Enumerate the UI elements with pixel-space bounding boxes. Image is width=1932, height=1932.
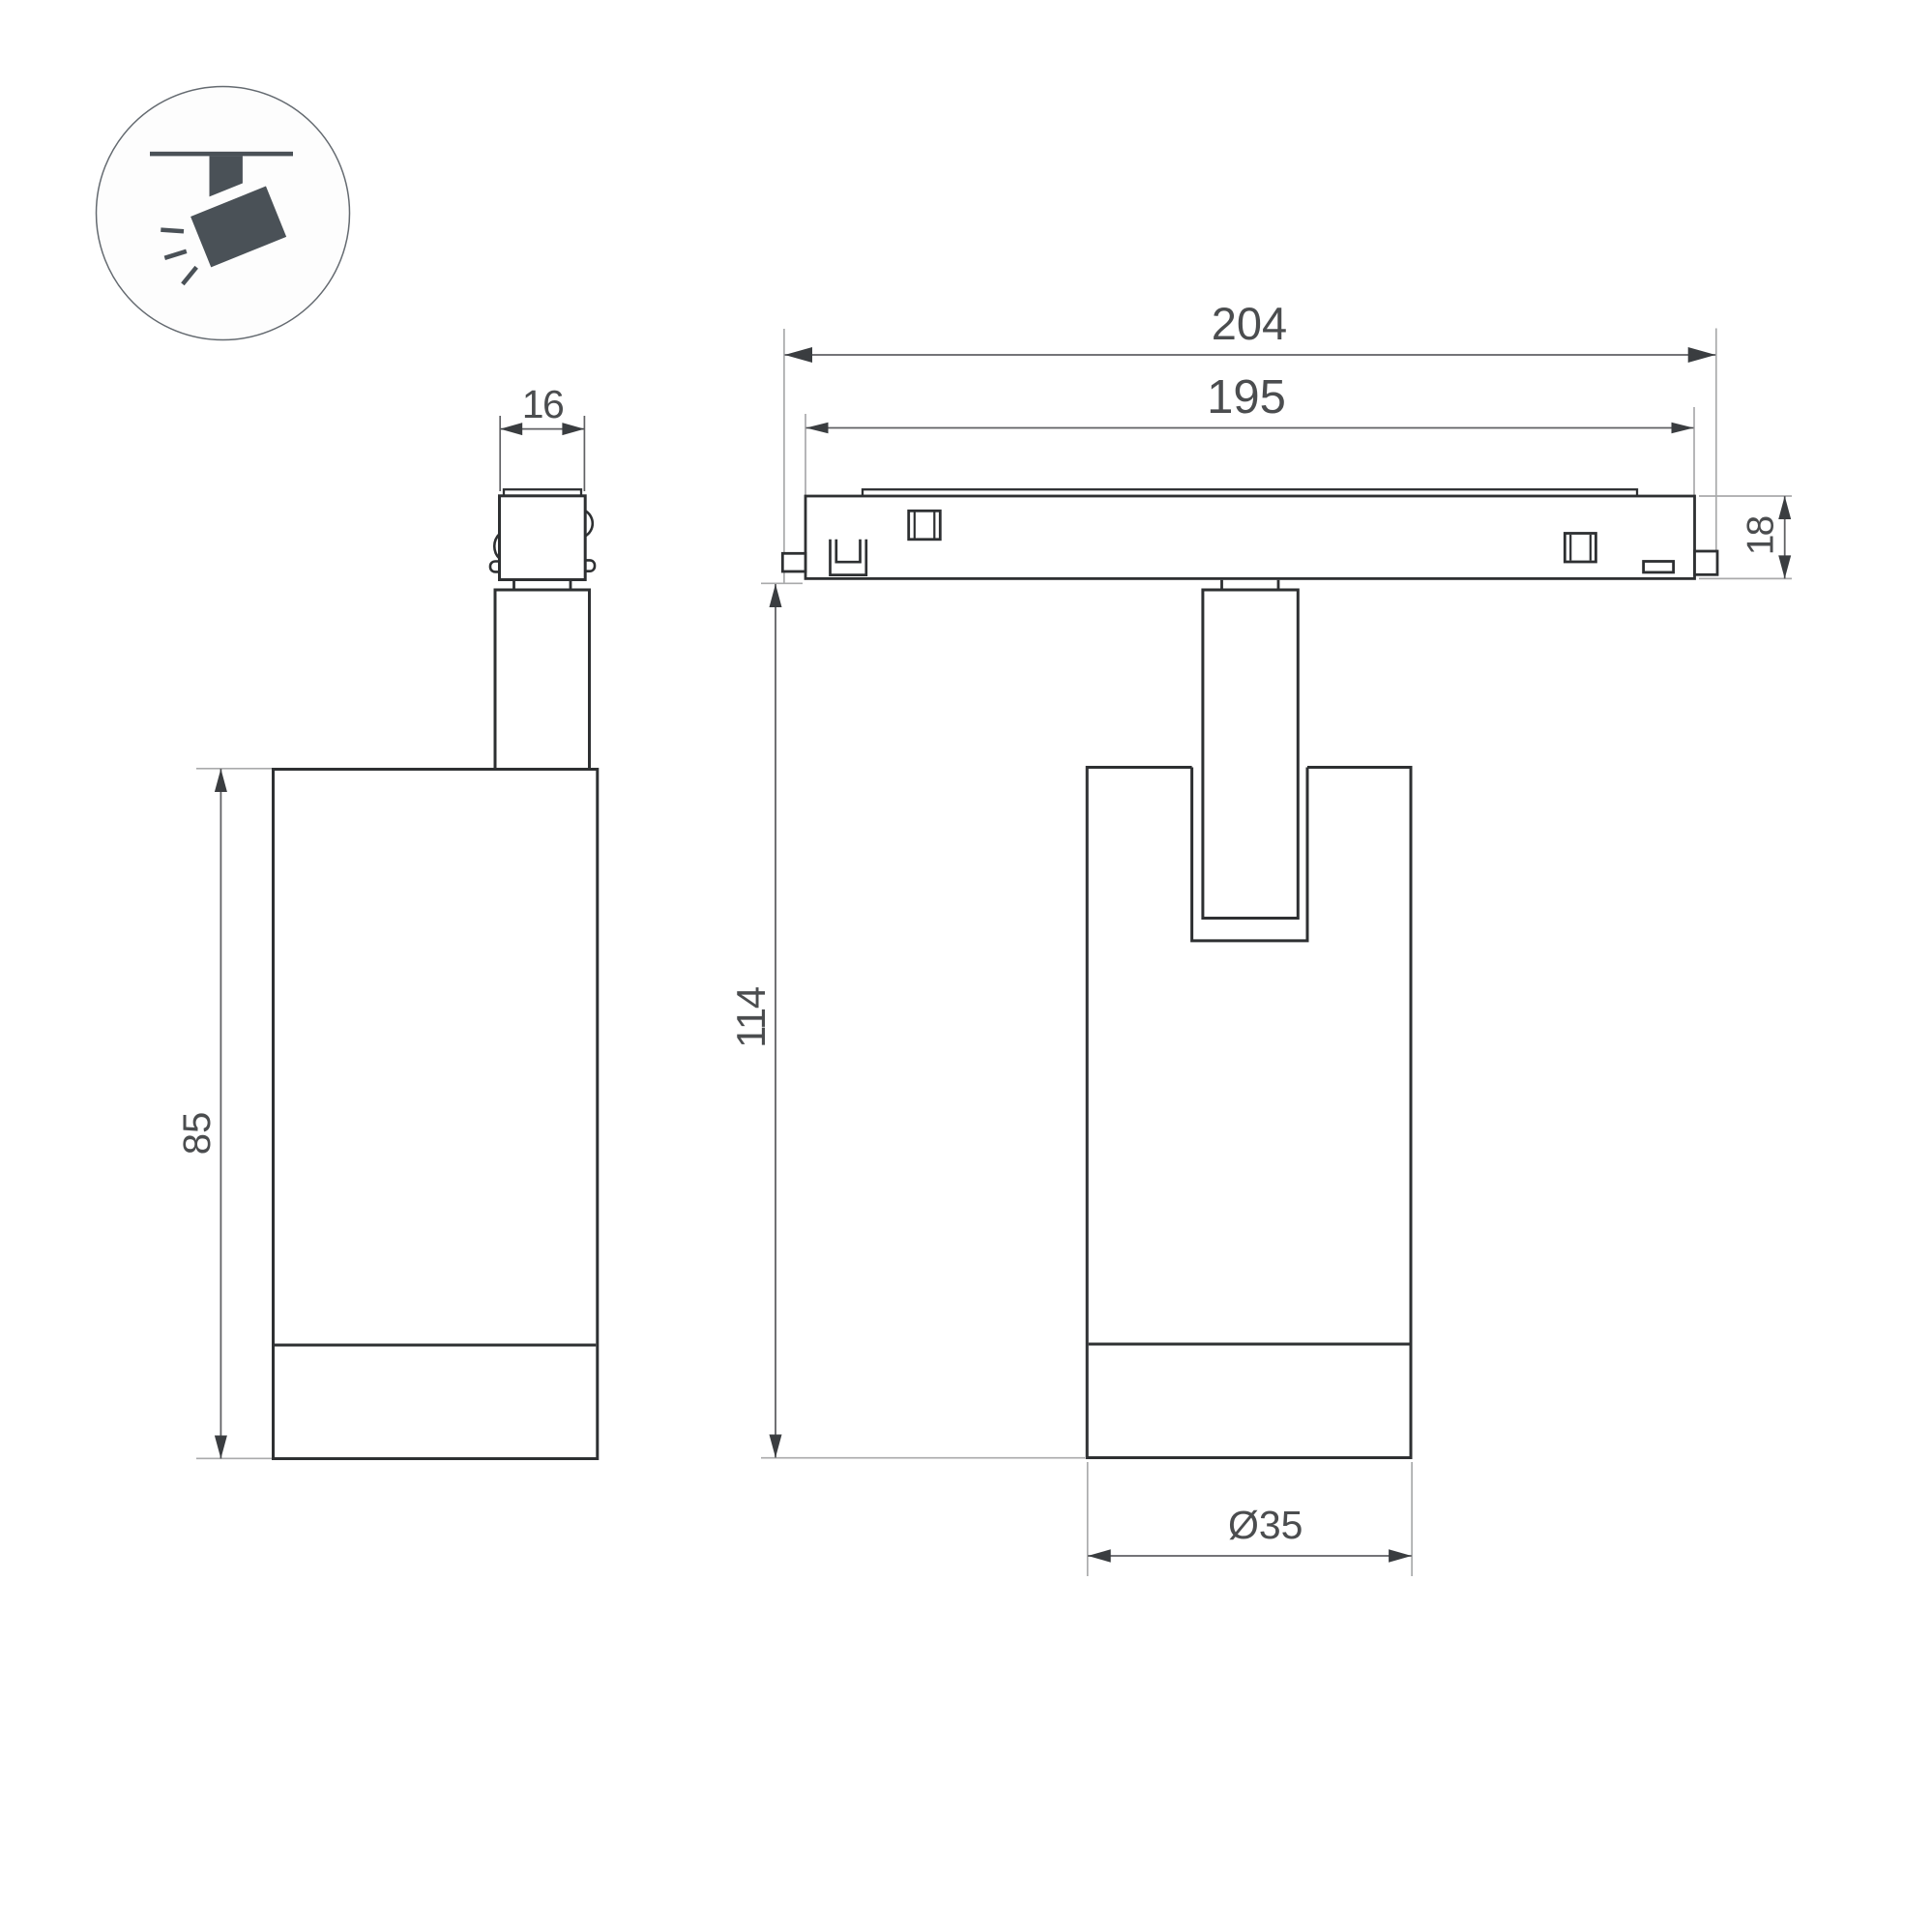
svg-text:204: 204 — [1212, 298, 1287, 349]
svg-text:18: 18 — [1740, 517, 1781, 556]
svg-text:114: 114 — [728, 986, 774, 1048]
svg-text:16: 16 — [522, 382, 564, 426]
svg-text:85: 85 — [176, 1112, 219, 1156]
svg-text:195: 195 — [1207, 371, 1286, 424]
svg-text:Ø35: Ø35 — [1228, 1503, 1303, 1547]
